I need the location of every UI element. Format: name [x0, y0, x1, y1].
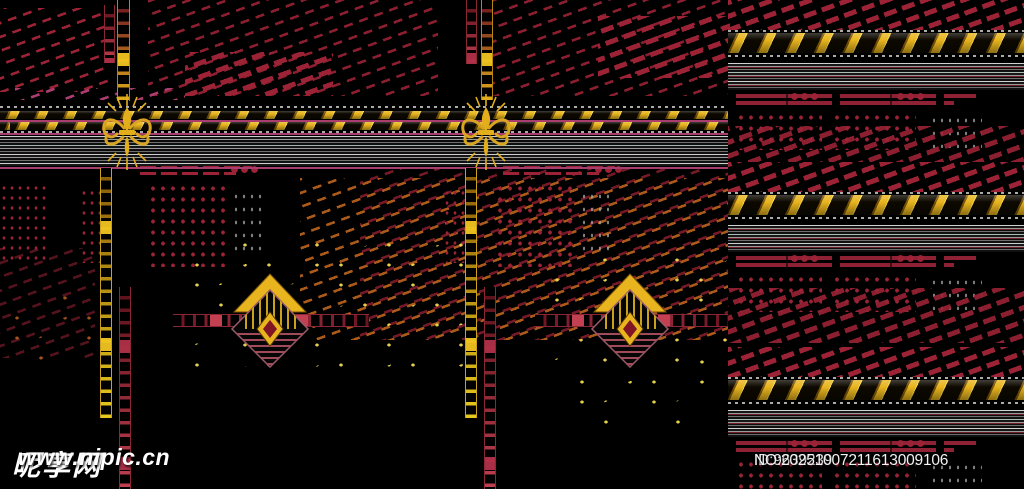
hazard-stripe-row	[728, 380, 1024, 400]
streak-cluster	[598, 16, 730, 78]
ladder-strip	[117, 0, 130, 101]
dash-line	[503, 172, 599, 175]
diamond-medallion-icon	[575, 272, 685, 368]
pattern-tile	[728, 0, 1024, 162]
pattern-tile	[728, 162, 1024, 347]
pattern-preview: 昵享网 www.nipic.cn ID:9639239 NO:202510072…	[0, 0, 1024, 489]
orange-specks	[5, 288, 95, 363]
dot-grid	[580, 190, 612, 252]
dotted-guide-line	[728, 217, 1024, 219]
dot-trio	[790, 92, 820, 101]
fleur-de-lis-icon	[458, 92, 514, 172]
pinstripe-band	[728, 410, 1024, 437]
hazard-stripe-row	[728, 33, 1024, 53]
segment-bar	[736, 263, 954, 267]
streak-cluster	[0, 8, 108, 92]
watermark-serial-no: NO:20251007211613009106	[754, 452, 948, 470]
ladder-strip	[466, 0, 477, 64]
streak-cluster	[728, 162, 1024, 192]
ladder-strip	[104, 5, 115, 63]
dot-grid	[0, 183, 46, 263]
dotted-guide-line	[728, 55, 1024, 57]
streak-cluster	[728, 126, 1024, 162]
right-pattern-panel	[728, 0, 1024, 489]
streak-cluster	[728, 347, 1024, 377]
streak-cluster	[728, 288, 1024, 343]
dotted-guide-line	[728, 402, 1024, 404]
dotted-guide-line	[728, 377, 1024, 379]
streak-cluster	[728, 0, 1024, 30]
dotted-guide-line	[728, 30, 1024, 32]
ladder-strip	[481, 0, 493, 100]
dash-line	[140, 172, 236, 175]
ladder-strip	[465, 168, 477, 418]
hazard-stripe-row	[728, 195, 1024, 215]
dot-grid	[495, 183, 575, 267]
pinstripe-band	[728, 63, 1024, 90]
ladder-strip	[484, 287, 496, 489]
dot-trio	[896, 439, 926, 448]
segment-bar	[736, 256, 976, 260]
ladder-strip	[100, 168, 112, 418]
dot-grid	[80, 188, 102, 263]
segment-bar	[736, 94, 976, 98]
dot-trio	[896, 92, 926, 101]
watermark-site-url: www.nipic.cn	[18, 444, 170, 471]
dot-trio	[896, 254, 926, 263]
segment-bar	[736, 101, 954, 105]
dotted-guide-line	[728, 192, 1024, 194]
streak-cluster	[185, 52, 333, 96]
dot-trio	[790, 439, 820, 448]
diamond-medallion-icon	[215, 272, 325, 368]
segment-bar	[736, 441, 976, 445]
fleur-de-lis-icon	[99, 92, 155, 172]
dot-grid	[232, 190, 262, 252]
dot-trio	[790, 254, 820, 263]
pinstripe-band	[728, 225, 1024, 252]
dot-grid	[148, 183, 226, 267]
